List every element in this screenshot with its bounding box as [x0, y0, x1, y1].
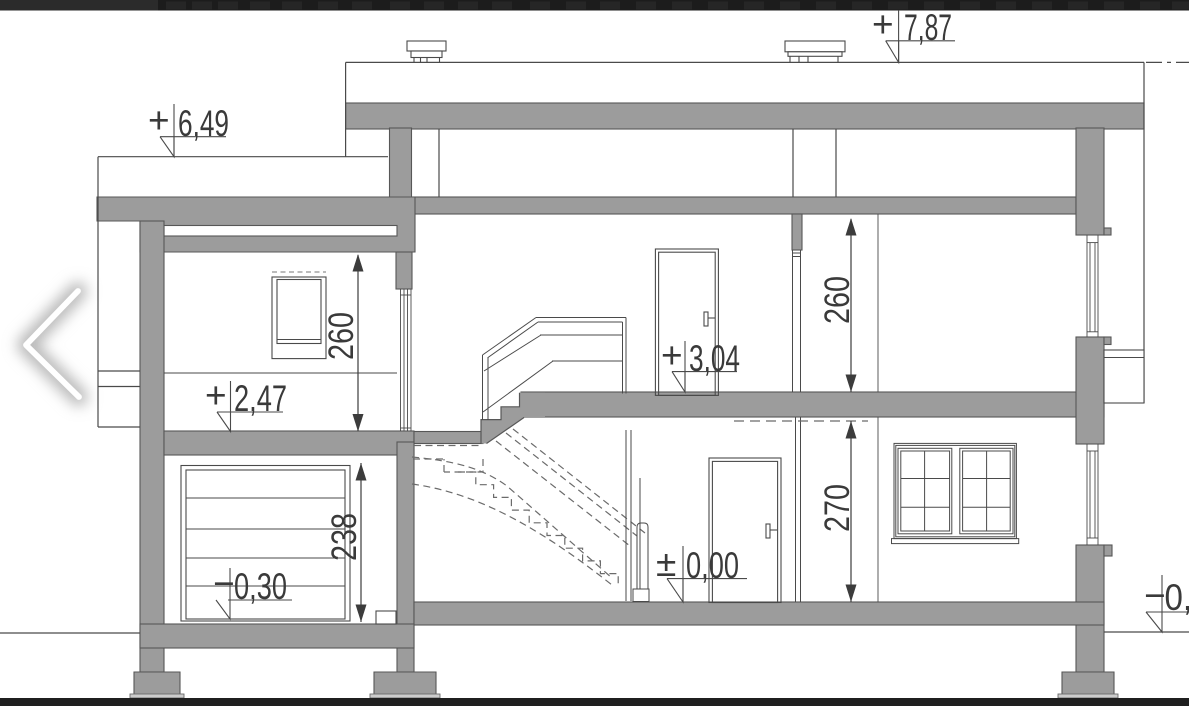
svg-text:+: + [661, 335, 683, 376]
svg-text:0,4: 0,4 [1165, 577, 1189, 618]
svg-text:2,47: 2,47 [234, 378, 287, 419]
svg-text:±: ± [656, 543, 676, 584]
svg-text:0,00: 0,00 [686, 545, 739, 586]
svg-text:6,49: 6,49 [178, 103, 229, 144]
svg-text:238: 238 [325, 513, 364, 561]
svg-text:−: − [1144, 575, 1166, 616]
svg-text:260: 260 [322, 312, 361, 360]
svg-text:7,87: 7,87 [904, 7, 952, 48]
svg-text:−: − [213, 563, 235, 604]
svg-text:270: 270 [818, 484, 857, 532]
svg-text:260: 260 [818, 276, 857, 324]
svg-text:0,30: 0,30 [234, 566, 287, 607]
svg-text:+: + [872, 4, 894, 45]
svg-text:3,04: 3,04 [689, 338, 740, 379]
svg-text:+: + [148, 100, 170, 141]
svg-text:+: + [205, 375, 227, 416]
